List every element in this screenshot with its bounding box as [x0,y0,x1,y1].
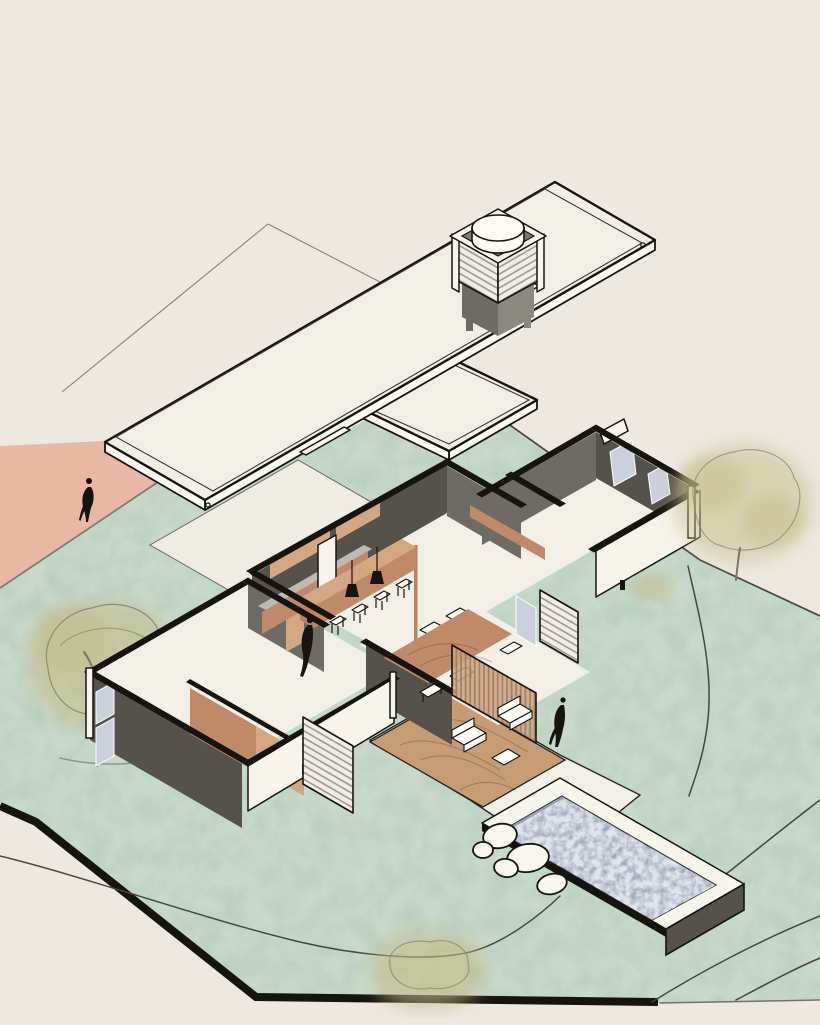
bush-bottom [370,930,486,1010]
door-handle-right [620,580,625,590]
light-tower [450,209,546,336]
scene-canvas [0,0,820,1025]
tower-leg-2 [524,314,531,328]
corner-column-left [86,668,93,738]
tower-post-right [537,234,544,292]
skylight-drum-top [472,215,524,241]
axonometric-villa-illustration [0,0,820,1025]
corner-column-hall [390,672,396,718]
tower-post-left [452,234,459,292]
tower-leg-1 [466,317,473,331]
